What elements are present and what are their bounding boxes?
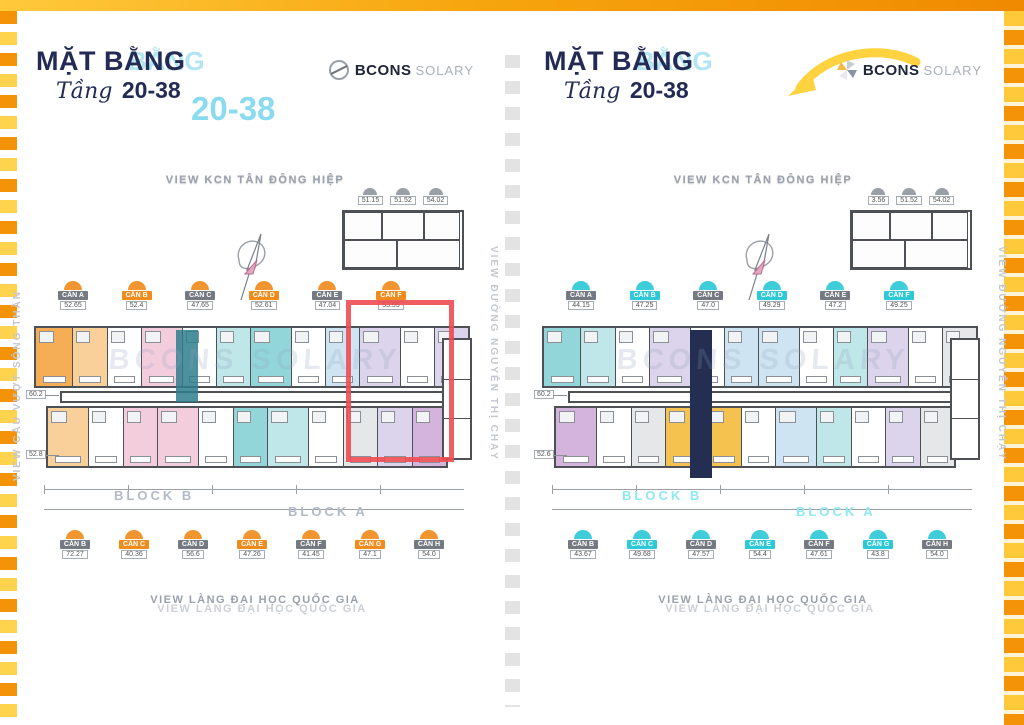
unit-code: CĂN E — [745, 540, 775, 549]
room — [157, 408, 198, 466]
unit-tag: CĂN D 49.29 — [747, 281, 797, 310]
mini-unit-tags: 3.56 51.52 54.02 — [850, 188, 972, 205]
unit-area: 47.25 — [632, 301, 658, 310]
mini-unit-tag: 51.15 — [358, 188, 384, 205]
unit-area: 40.36 — [121, 550, 147, 559]
highlighted-unit-outline — [346, 300, 454, 462]
unit-area: 52.4 — [126, 301, 148, 310]
unit-arc-icon — [826, 281, 844, 290]
view-label-top: VIEW KCN TÂN ĐÔNG HIỆP — [26, 174, 484, 186]
unit-area: 52.61 — [251, 301, 277, 310]
mini-unit-tags: 51.15 51.52 54.02 — [342, 188, 464, 205]
mini-arc-icon — [935, 188, 949, 195]
unit-tag: CĂN B 47.25 — [620, 281, 670, 310]
floorplan-panel-left: BẰNG MẶT BẰNG Tầng 20-38 20-38 BCONS SOL… — [26, 38, 484, 703]
unit-arc-icon — [243, 530, 261, 539]
unit-tag: CĂN A 44.15 — [556, 281, 606, 310]
mini-arc-icon — [396, 188, 410, 195]
unit-code: CĂN D — [249, 291, 279, 300]
detached-rooms — [342, 210, 464, 270]
mini-unit-tag: 54.02 — [929, 188, 955, 205]
page-title: MẶT BẰNG — [36, 46, 286, 77]
view-label-side-left: VIEW CẦU VƯỢT SÓNG THẦN — [12, 290, 23, 481]
floor-range: 20-38 — [630, 77, 689, 103]
mini-unit-area: 51.52 — [896, 196, 922, 205]
mini-unit-area: 54.02 — [929, 196, 955, 205]
unit-arc-icon — [636, 281, 654, 290]
page-frame: BẰNG MẶT BẰNG Tầng 20-38 20-38 BCONS SOL… — [0, 0, 1024, 725]
room — [905, 240, 968, 268]
page-title: MẶT BẰNG — [544, 46, 794, 77]
unit-area: 54.0 — [926, 550, 948, 559]
area-callout: 60.2 — [534, 390, 554, 399]
unit-area: 47.2 — [825, 301, 847, 310]
unit-arc-icon — [751, 530, 769, 539]
room — [596, 408, 630, 466]
view-label-side-right: VIEW ĐƯỜNG NGUYỄN THỊ CHẠY — [488, 246, 499, 461]
unit-area: 47.61 — [806, 550, 832, 559]
room — [382, 212, 424, 240]
unit-tag: CĂN F 41.45 — [286, 530, 336, 559]
unit-arc-icon — [692, 530, 710, 539]
block-label-b: BLOCK B — [622, 488, 702, 503]
unit-tag: CĂN C 40.36 — [109, 530, 159, 559]
unit-area: 49.25 — [886, 301, 912, 310]
unit-code: CĂN C — [119, 540, 149, 549]
unit-arc-icon — [869, 530, 887, 539]
unit-code: CĂN D — [757, 291, 787, 300]
unit-code: CĂN G — [863, 540, 894, 549]
unit-arc-icon — [763, 281, 781, 290]
unit-area: 43.67 — [570, 550, 596, 559]
detached-rooms — [850, 210, 972, 270]
room — [88, 408, 122, 466]
unit-tag: CĂN D 52.61 — [239, 281, 289, 310]
unit-arc-icon — [890, 281, 908, 290]
bottom-unit-tags: CĂN B 43.67 CĂN C 49.68 CĂN D 47.57 CĂN … — [558, 530, 962, 559]
unit-code: CĂN F — [884, 291, 913, 300]
unit-arc-icon — [928, 530, 946, 539]
title-subtitle: Tầng 20-38 — [544, 77, 794, 104]
unit-arc-icon — [574, 530, 592, 539]
room — [48, 408, 88, 466]
unit-code: CĂN D — [178, 540, 208, 549]
unit-arc-icon — [633, 530, 651, 539]
brand-subname: SOLARY — [923, 63, 982, 78]
room — [932, 212, 967, 240]
view-label-bottom: VIEW LÀNG ĐẠI HỌC QUỐC GIA VIEW LÀNG ĐẠI… — [534, 594, 992, 606]
top-unit-tags: CĂN A 44.15 CĂN B 47.25 CĂN C 47.0 CĂN D… — [556, 281, 924, 310]
brand-logo: BCONS SOLARY — [327, 58, 474, 82]
unit-tag: CĂN F 49.25 — [874, 281, 924, 310]
unit-code: CĂN F — [804, 540, 833, 549]
unit-code: CĂN G — [355, 540, 386, 549]
unit-code: CĂN B — [60, 540, 90, 549]
view-label-top: VIEW KCN TÂN ĐÔNG HIỆP — [534, 174, 992, 186]
room — [424, 212, 459, 240]
floor-word: Tầng — [564, 79, 620, 104]
unit-arc-icon — [128, 281, 146, 290]
unit-code: CĂN A — [58, 291, 88, 300]
border-top-bar — [0, 0, 1024, 11]
unit-tag: CĂN B 52.4 — [112, 281, 162, 310]
unit-arc-icon — [572, 281, 590, 290]
room — [775, 408, 816, 466]
mini-unit-area: 51.15 — [358, 196, 384, 205]
brand-circle-icon — [327, 58, 351, 82]
room — [344, 240, 397, 268]
unit-area: 47.65 — [187, 301, 213, 310]
floor-word: Tầng — [56, 79, 112, 104]
room — [308, 408, 342, 466]
unit-code: CĂN C — [693, 291, 723, 300]
dimension-lines — [44, 485, 464, 515]
building-wing-lower — [554, 406, 956, 468]
unit-tag: CĂN H 54.0 — [404, 530, 454, 559]
room — [885, 408, 919, 466]
unit-tag: CĂN G 43.8 — [853, 530, 903, 559]
floorplan-panel-right: BẰNG MẶT BẰNG Tầng 20-38 BCONS SOLARY VI — [534, 38, 992, 703]
bottom-unit-tags: CĂN B 72.27 CĂN C 40.36 CĂN D 56.6 CĂN E… — [50, 530, 454, 559]
unit-tag: CĂN E 54.4 — [735, 530, 785, 559]
unit-code: CĂN B — [122, 291, 152, 300]
mini-unit-tag: 51.52 — [896, 188, 922, 205]
unit-arc-icon — [699, 281, 717, 290]
unit-arc-icon — [361, 530, 379, 539]
room — [631, 408, 665, 466]
brand-subname: SOLARY — [415, 63, 474, 78]
unit-code: CĂN F — [296, 540, 325, 549]
unit-area: 43.8 — [867, 550, 889, 559]
room — [397, 240, 460, 268]
unit-area: 56.6 — [182, 550, 204, 559]
unit-code: CĂN E — [312, 291, 342, 300]
unit-area: 49.68 — [629, 550, 655, 559]
brand-name: BCONS — [355, 62, 412, 79]
block-label-b: BLOCK B — [114, 488, 194, 503]
unit-arc-icon — [255, 281, 273, 290]
room — [920, 408, 954, 466]
room — [816, 408, 850, 466]
area-callout: 52.8 — [26, 450, 46, 459]
view-label-bottom-ghost: VIEW LÀNG ĐẠI HỌC QUỐC GIA — [33, 603, 491, 615]
panel-divider-checker — [505, 55, 520, 707]
floor-range: 20-38 — [122, 77, 181, 103]
unit-arc-icon — [125, 530, 143, 539]
view-label-bottom: VIEW LÀNG ĐẠI HỌC QUỐC GIA VIEW LÀNG ĐẠI… — [26, 594, 484, 606]
room — [952, 379, 978, 419]
room — [851, 408, 885, 466]
unit-arc-icon — [184, 530, 202, 539]
mini-arc-icon — [429, 188, 443, 195]
unit-code: CĂN H — [414, 540, 444, 549]
room — [741, 408, 775, 466]
title-subtitle: Tầng 20-38 — [36, 77, 286, 104]
border-right-checker — [1004, 11, 1024, 725]
unit-arc-icon — [302, 530, 320, 539]
brand-logo: BCONS SOLARY — [835, 58, 982, 82]
unit-tag: CĂN H 54.0 — [912, 530, 962, 559]
unit-code: CĂN E — [237, 540, 267, 549]
unit-tag: CĂN E 47.26 — [227, 530, 277, 559]
detached-units-cluster: 51.15 51.52 54.02 — [342, 188, 464, 270]
unit-area: 54.0 — [418, 550, 440, 559]
unit-arc-icon — [420, 530, 438, 539]
title-block: BẰNG MẶT BẰNG Tầng 20-38 — [544, 46, 794, 156]
unit-tag: CĂN A 52.65 — [48, 281, 98, 310]
unit-arc-icon — [382, 281, 400, 290]
unit-area: 52.65 — [60, 301, 86, 310]
unit-area: 47.0 — [697, 301, 719, 310]
unit-tag: CĂN E 47.04 — [302, 281, 352, 310]
mini-unit-tag: 3.56 — [868, 188, 890, 205]
unit-code: CĂN H — [922, 540, 952, 549]
mini-unit-area: 3.56 — [868, 196, 890, 205]
unit-tag: CĂN G 47.1 — [345, 530, 395, 559]
room — [890, 212, 932, 240]
unit-arc-icon — [66, 530, 84, 539]
unit-area: 54.4 — [749, 550, 771, 559]
mini-unit-tag: 51.52 — [390, 188, 416, 205]
room — [556, 408, 596, 466]
view-label-bottom-ghost: VIEW LÀNG ĐẠI HỌC QUỐC GIA — [541, 603, 999, 615]
unit-tag: CĂN C 47.65 — [175, 281, 225, 310]
mini-arc-icon — [363, 188, 377, 195]
unit-code: CĂN C — [185, 291, 215, 300]
unit-code: CĂN E — [820, 291, 850, 300]
unit-tag: CĂN F 47.61 — [794, 530, 844, 559]
corridor — [568, 391, 952, 403]
unit-arc-icon — [64, 281, 82, 290]
unit-tag: CĂN C 49.68 — [617, 530, 667, 559]
watermark: BCONS SOLARY — [533, 344, 993, 377]
view-label-side-right: VIEW ĐƯỜNG NGUYỄN THỊ CHẠY — [996, 246, 1007, 461]
room — [267, 408, 308, 466]
unit-code: CĂN B — [630, 291, 660, 300]
unit-arc-icon — [191, 281, 209, 290]
detached-units-cluster: 3.56 51.52 54.02 — [850, 188, 972, 270]
area-callout: 60.2 — [26, 390, 46, 399]
room — [233, 408, 267, 466]
unit-tag: CĂN B 72.27 — [50, 530, 100, 559]
unit-tag: CĂN E 47.2 — [810, 281, 860, 310]
room — [198, 408, 232, 466]
brand-pinwheel-icon — [835, 58, 859, 82]
room — [852, 240, 905, 268]
unit-tag: CĂN D 56.6 — [168, 530, 218, 559]
title-block: BẰNG MẶT BẰNG Tầng 20-38 20-38 — [36, 46, 286, 156]
unit-code: CĂN D — [686, 540, 716, 549]
mini-unit-tag: 54.02 — [423, 188, 449, 205]
unit-area: 47.26 — [239, 550, 265, 559]
room — [123, 408, 157, 466]
unit-area: 72.27 — [62, 550, 88, 559]
mini-arc-icon — [871, 188, 885, 195]
unit-code: CĂN A — [566, 291, 596, 300]
unit-tag: CĂN C 47.0 — [683, 281, 733, 310]
unit-area: 41.45 — [298, 550, 324, 559]
room — [852, 212, 890, 240]
brand-name: BCONS — [863, 62, 920, 79]
unit-tag: CĂN B 43.67 — [558, 530, 608, 559]
unit-area: 44.15 — [568, 301, 594, 310]
unit-tag: CĂN D 47.57 — [676, 530, 726, 559]
unit-area: 47.04 — [315, 301, 341, 310]
dimension-lines — [552, 485, 972, 515]
area-callout: 52.6 — [534, 450, 554, 459]
block-label-a: BLOCK A — [796, 504, 876, 519]
unit-code: CĂN B — [568, 540, 598, 549]
unit-area: 47.1 — [359, 550, 381, 559]
unit-arc-icon — [810, 530, 828, 539]
unit-code: CĂN C — [627, 540, 657, 549]
mini-unit-area: 51.52 — [390, 196, 416, 205]
unit-area: 47.57 — [688, 550, 714, 559]
unit-area: 49.29 — [759, 301, 785, 310]
unit-code: CĂN F — [376, 291, 405, 300]
block-label-a: BLOCK A — [288, 504, 368, 519]
mini-arc-icon — [902, 188, 916, 195]
room — [344, 212, 382, 240]
unit-arc-icon — [318, 281, 336, 290]
mini-unit-area: 54.02 — [423, 196, 449, 205]
room — [952, 418, 978, 458]
